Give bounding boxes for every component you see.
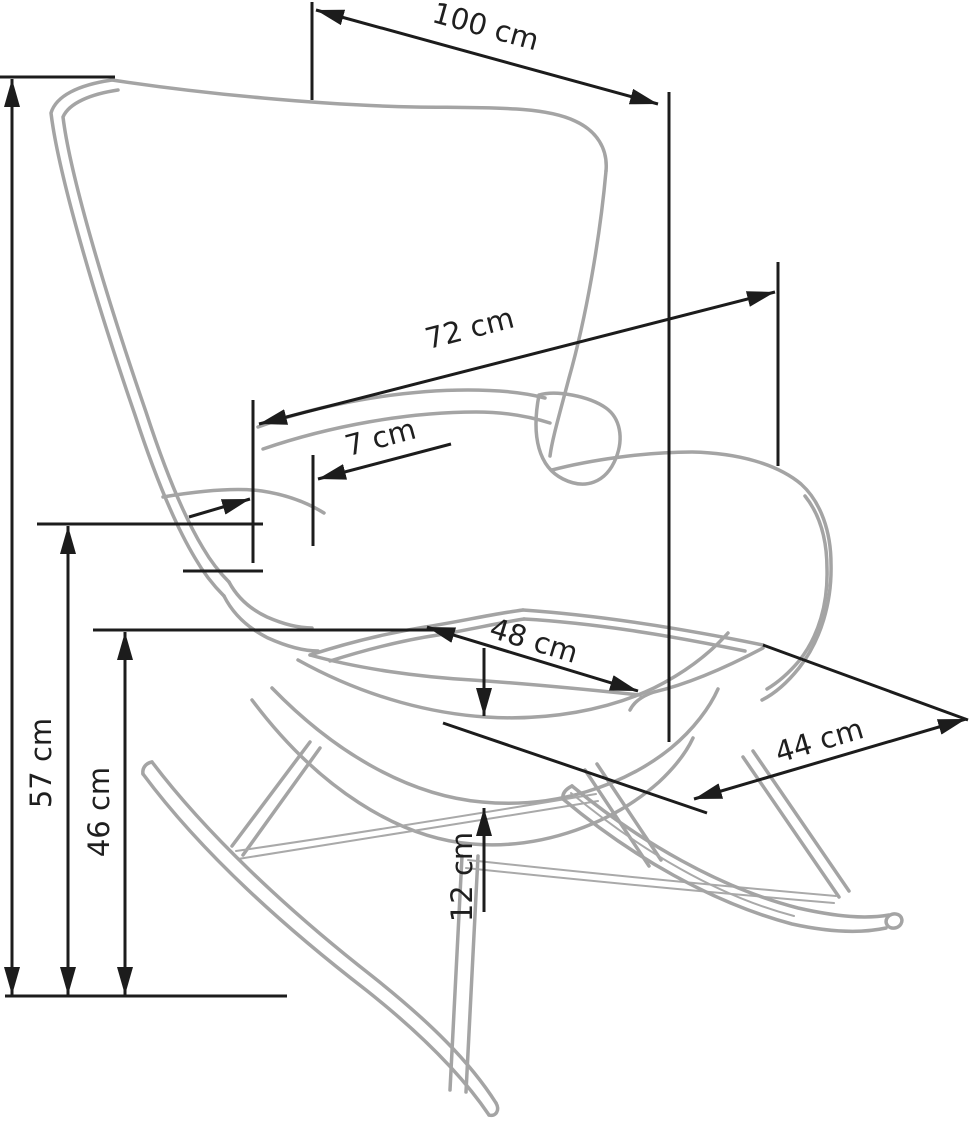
dimension-annotations: 100 cm 72 cm 7 cm 48 cm 44 cm 57 cm 46 c…	[0, 0, 968, 996]
right-rocker-top-edge	[572, 786, 889, 917]
rear-left-leg-outer	[232, 742, 310, 846]
cross-brace-left-lower	[238, 801, 598, 859]
backrest-inner-left-edge	[63, 90, 229, 582]
right-armrest-inner-arch	[767, 496, 827, 689]
rear-left-leg-inner	[243, 748, 320, 855]
dimension-diagram-page: 100 cm 72 cm 7 cm 48 cm 44 cm 57 cm 46 c…	[0, 0, 970, 1128]
seat-depth-ext-left	[443, 723, 707, 813]
seat-depth-ext-right	[763, 645, 968, 720]
cross-brace-right-lower	[466, 868, 834, 903]
backrest-top-edge	[112, 80, 606, 171]
left-rocker-end-cap	[489, 1103, 498, 1115]
front-right-leg-outer	[585, 770, 649, 866]
right-rocker-bottom-edge	[563, 799, 886, 931]
wing-offset-arrow-left	[189, 499, 250, 517]
seat-thickness-label: 12 cm	[445, 832, 479, 922]
chair-line-art	[51, 80, 904, 1115]
cross-brace-right-upper	[468, 860, 836, 896]
seat-right-crease	[630, 648, 763, 710]
left-rocker-front-cap	[143, 762, 152, 774]
rear-right-leg-outer	[743, 757, 839, 897]
rear-right-leg-inner	[753, 751, 849, 891]
backrest-width-arrow	[259, 292, 775, 424]
left-rocker-top-edge	[152, 762, 496, 1103]
backrest-right-edge	[550, 171, 606, 456]
cross-brace-left-upper	[236, 794, 596, 851]
left-rocker-bottom-edge	[143, 774, 489, 1115]
armrest-scroll-outer	[224, 596, 318, 651]
overall-width-label: 100 cm	[429, 0, 543, 57]
backrest-outer-left-edge	[51, 80, 224, 596]
lumbar-cushion-outline	[536, 393, 620, 484]
right-armrest-outer-arch	[552, 452, 831, 700]
seat-frame-mid-sweep	[272, 688, 718, 803]
seat-height-label: 46 cm	[82, 767, 116, 857]
backrest-width-label: 72 cm	[422, 301, 518, 357]
armrest-height-label: 57 cm	[24, 718, 58, 808]
rocking-chair-dimension-diagram: 100 cm 72 cm 7 cm 48 cm 44 cm 57 cm 46 c…	[0, 0, 970, 1128]
seat-frame-bottom-sweep	[252, 700, 693, 845]
